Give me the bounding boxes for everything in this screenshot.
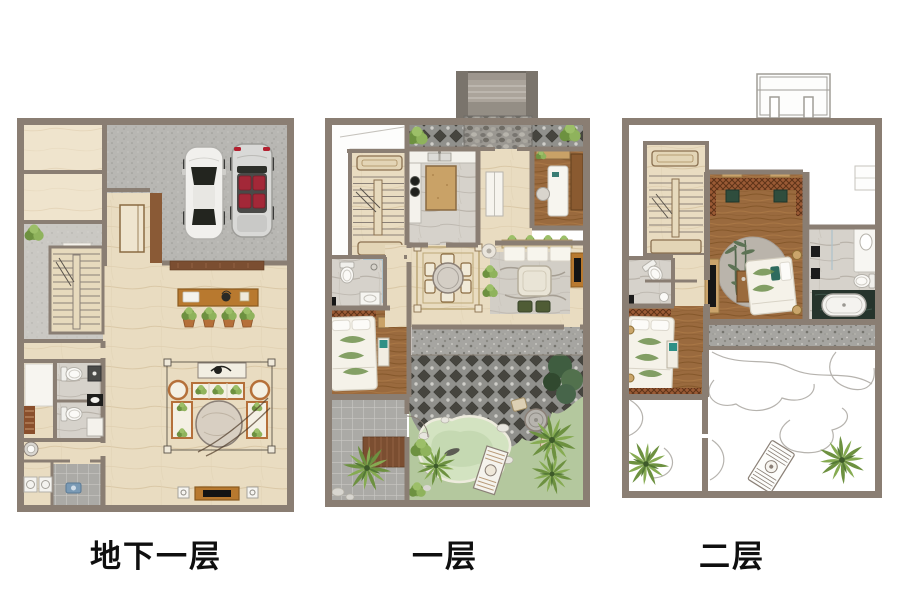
plan-first-floor (328, 71, 587, 504)
island-counter (426, 166, 456, 210)
round-chair-icon (169, 381, 187, 399)
speaker-icon (178, 487, 189, 498)
round-chair-icon (251, 381, 269, 399)
elevator (120, 205, 144, 252)
master-bathroom (810, 227, 878, 320)
stove-icon (411, 177, 420, 186)
plan-basement (20, 121, 291, 509)
garden-courtyard (408, 354, 584, 500)
study (532, 149, 584, 228)
floor-label-first: 一层 (405, 538, 485, 578)
side-patio (328, 400, 407, 500)
basement-staircase (50, 247, 103, 333)
toilet-icon (61, 407, 82, 421)
storage-room-1 (24, 125, 103, 171)
convertible-car-icon (230, 144, 274, 237)
double-bed-icon (329, 316, 378, 391)
floor-plan-artwork (0, 0, 900, 600)
wood-threshold (170, 261, 264, 270)
toilet-icon (854, 274, 875, 288)
ottoman-icon (536, 301, 550, 312)
speaker-icon (247, 487, 258, 498)
console-table (178, 289, 258, 306)
porch-railing (757, 74, 830, 118)
lattice-frieze (627, 309, 671, 316)
l2-bedroom (625, 306, 705, 397)
door-icon (811, 268, 820, 279)
plan-second-floor (620, 74, 879, 495)
floor-label-second: 二层 (692, 538, 772, 578)
sink-icon (360, 292, 380, 305)
window-panel (774, 190, 787, 202)
lamp-icon (793, 251, 802, 260)
double-bed-icon (745, 257, 796, 316)
kitchen (407, 149, 478, 245)
window-panel (726, 190, 739, 202)
toilet-icon (340, 262, 354, 283)
l1-bathroom (328, 257, 385, 308)
master-bedroom (705, 170, 803, 320)
chair-icon (537, 188, 550, 201)
closet (25, 364, 53, 406)
sink-icon (660, 293, 669, 302)
lattice-frieze (709, 178, 803, 190)
storage-room-2 (24, 174, 103, 221)
sink-icon (428, 153, 439, 161)
floor-plan-sheet: 地下一层 一层 二层 (0, 0, 900, 600)
garage-door-sill (150, 193, 162, 263)
sedan-car-icon (182, 147, 226, 239)
lamp-icon (793, 306, 802, 315)
entry-porch (456, 71, 538, 122)
bookcase (571, 154, 583, 210)
sofa-icon (504, 247, 571, 261)
toilet-icon (61, 367, 82, 381)
shelf (24, 406, 35, 434)
balcony (709, 325, 878, 348)
l2-staircase (645, 143, 707, 255)
ottoman-icon (518, 301, 532, 312)
l1-staircase (350, 149, 407, 257)
floor-label-basement: 地下一层 (88, 538, 224, 578)
door-icon (811, 246, 820, 257)
stone-terrace (412, 327, 584, 355)
bath-cabinet (87, 418, 103, 436)
